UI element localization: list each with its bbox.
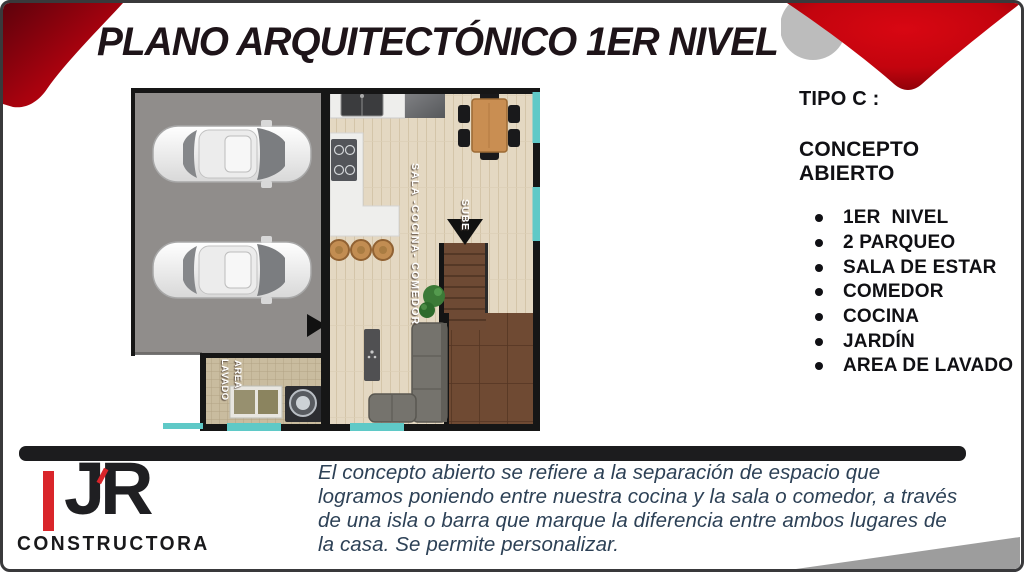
floor-plan-image: SALA -COCINA- COMEDOR SUBE AREA LAVADO bbox=[131, 88, 540, 433]
washing-machine bbox=[285, 386, 322, 422]
logo-monogram: JR bbox=[64, 452, 149, 526]
tv-console bbox=[364, 329, 380, 381]
info-panel: TIPO C : CONCEPTO ABIERTO 1ER NIVEL 2 PA… bbox=[799, 88, 1014, 379]
page-title: PLANO ARQUITECTÓNICO 1ER NIVEL bbox=[97, 20, 778, 65]
concept-description: El concepto abierto se refiere a la sepa… bbox=[318, 461, 966, 557]
list-item: AREA DE LAVADO bbox=[815, 354, 1014, 379]
red-corner-top-right-decoration bbox=[781, 3, 1024, 103]
presentation-slide: PLANO ARQUITECTÓNICO 1ER NIVEL bbox=[0, 0, 1024, 572]
bullet-icon bbox=[815, 288, 823, 296]
car-1 bbox=[153, 120, 311, 188]
bullet-icon bbox=[815, 239, 823, 247]
laundry-label-line1: AREA bbox=[232, 360, 243, 389]
logo-company-name: CONSTRUCTORA bbox=[17, 533, 210, 556]
list-item: 1ER NIVEL bbox=[815, 206, 1014, 231]
room-label: SALA -COCINA- COMEDOR bbox=[409, 163, 421, 325]
concept-subtitle: CONCEPTO ABIERTO bbox=[799, 138, 1014, 186]
garage-area bbox=[133, 90, 326, 354]
stairs-label: SUBE bbox=[459, 199, 471, 231]
bar-stools bbox=[329, 240, 393, 260]
bullet-icon bbox=[815, 313, 823, 321]
bullet-icon bbox=[815, 264, 823, 272]
kitchen-counter-top bbox=[330, 90, 445, 118]
list-item: JARDÍN bbox=[815, 329, 1014, 354]
logo-red-bar bbox=[43, 471, 54, 531]
bullet-icon bbox=[815, 338, 823, 346]
list-item: SALA DE ESTAR bbox=[815, 255, 1014, 280]
refrigerator bbox=[405, 90, 445, 118]
bullet-icon bbox=[815, 362, 823, 370]
bullet-icon bbox=[815, 214, 823, 222]
cooktop bbox=[331, 139, 357, 181]
list-item: COMEDOR bbox=[815, 280, 1014, 305]
laundry-label-line2: LAVADO bbox=[219, 359, 230, 401]
divider-bar bbox=[19, 446, 966, 461]
list-item: 2 PARQUEO bbox=[815, 231, 1014, 256]
company-logo: JR bbox=[30, 465, 160, 537]
car-2 bbox=[153, 236, 311, 304]
feature-list: 1ER NIVEL 2 PARQUEO SALA DE ESTAR COMEDO… bbox=[799, 206, 1014, 379]
list-item: COCINA bbox=[815, 305, 1014, 330]
